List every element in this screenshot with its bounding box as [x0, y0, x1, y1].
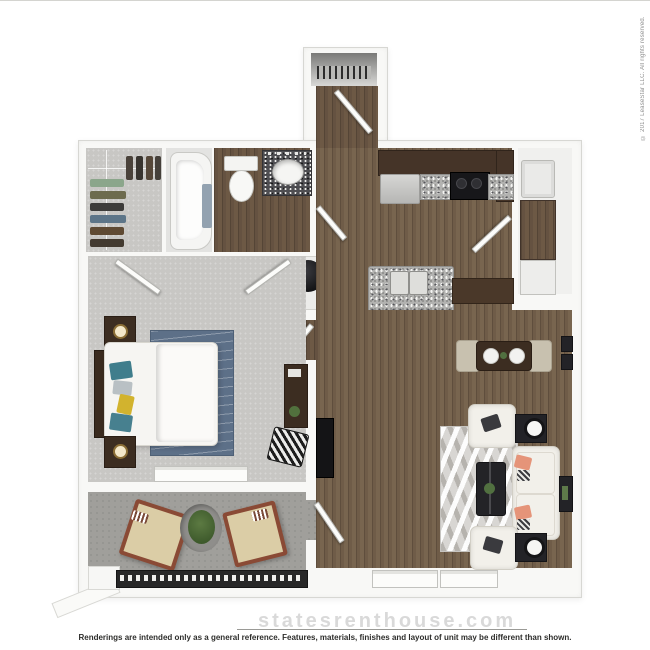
island-sink-left	[390, 271, 409, 295]
dresser-item	[288, 369, 301, 377]
place-setting	[483, 348, 499, 364]
clothing-item	[90, 191, 126, 199]
toilet-tank	[224, 156, 258, 171]
footer-divider	[237, 629, 527, 630]
vanity-faucet-items	[268, 152, 306, 155]
washer	[521, 160, 555, 198]
bedroom-window	[154, 466, 248, 482]
disclaimer-text: Renderings are intended only as a genera…	[0, 633, 650, 642]
living-window	[440, 570, 498, 588]
kitchen-counter-left	[420, 174, 452, 200]
teal-pillow	[109, 413, 133, 433]
place-setting	[509, 348, 525, 364]
clothing-item	[90, 215, 126, 223]
laundry-counter	[520, 200, 556, 260]
entry-hall-floor	[316, 86, 378, 150]
duvet	[156, 344, 214, 442]
kitchen-upper-cabinets	[378, 150, 514, 176]
wall-art	[561, 354, 573, 370]
wall-art	[561, 336, 573, 352]
floorplan-screenshot: © 2017 LeaseStar LLC. All rights reserve…	[0, 0, 650, 650]
tv-console	[316, 418, 334, 478]
patio-railing-slats	[120, 575, 302, 581]
closet-rod	[106, 150, 107, 250]
clothing-item	[146, 156, 153, 180]
planter-plant	[188, 510, 215, 544]
breakfast-bar	[452, 278, 514, 304]
clothing-item	[90, 239, 124, 247]
burner	[471, 178, 482, 189]
dresser-plant	[289, 406, 300, 417]
coffee-table-plant	[484, 483, 495, 494]
table-centerpiece-plant	[500, 352, 507, 359]
table-lamp	[524, 418, 545, 439]
teal-pillow	[109, 361, 133, 381]
clothing-item	[136, 156, 143, 180]
table-lamp	[524, 537, 545, 558]
burner	[456, 178, 467, 189]
striped-pillow	[517, 519, 530, 530]
bathtub-basin	[176, 160, 204, 240]
top-border-line	[0, 0, 650, 1]
clothing-item	[126, 156, 133, 180]
striped-pillow	[517, 470, 530, 481]
living-window	[372, 570, 438, 588]
towel	[202, 184, 212, 228]
toilet-bowl	[229, 170, 254, 202]
dryer-cabinet	[520, 260, 556, 295]
nightstand-lamp	[113, 324, 128, 339]
clothing-item	[155, 156, 161, 180]
island-sink-right	[409, 271, 428, 295]
wall-art-inner	[562, 486, 568, 500]
kitchen-counter-right	[488, 174, 514, 200]
coat-hangers	[317, 66, 371, 79]
clothing-item	[90, 227, 124, 235]
nightstand-lamp	[113, 444, 128, 459]
vanity-sink	[272, 159, 304, 185]
clothing-item	[90, 179, 124, 187]
copyright-text: © 2017 LeaseStar LLC. All rights reserve…	[640, 8, 646, 140]
refrigerator	[380, 174, 420, 204]
clothing-item	[90, 203, 124, 211]
